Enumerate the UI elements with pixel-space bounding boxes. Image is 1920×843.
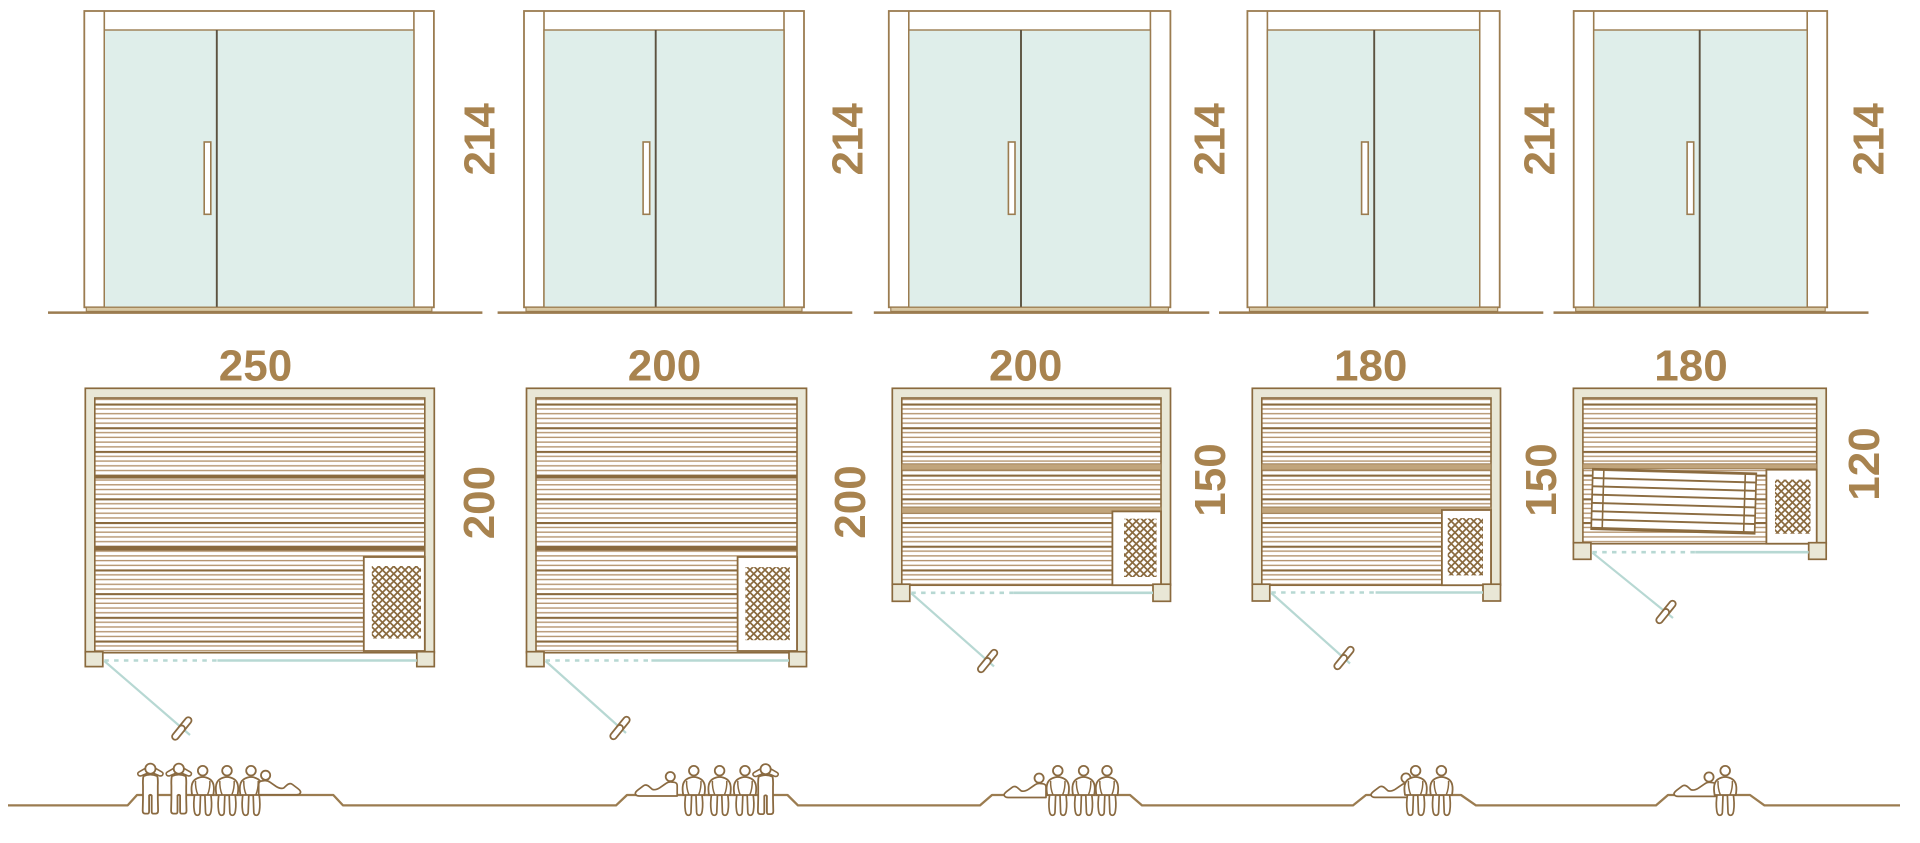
svg-text:250: 250 — [219, 342, 292, 391]
svg-text:120: 120 — [1840, 427, 1889, 500]
svg-text:180: 180 — [1334, 342, 1407, 391]
svg-text:150: 150 — [1517, 443, 1566, 516]
svg-text:214: 214 — [1186, 103, 1235, 176]
svg-text:214: 214 — [1845, 103, 1894, 176]
svg-text:200: 200 — [989, 342, 1062, 391]
svg-text:214: 214 — [455, 103, 504, 176]
svg-text:180: 180 — [1654, 342, 1727, 391]
svg-text:200: 200 — [455, 466, 504, 539]
svg-text:214: 214 — [824, 103, 873, 176]
svg-text:214: 214 — [1516, 103, 1565, 176]
svg-text:150: 150 — [1186, 443, 1235, 516]
svg-text:200: 200 — [826, 465, 875, 538]
svg-text:200: 200 — [628, 342, 701, 391]
